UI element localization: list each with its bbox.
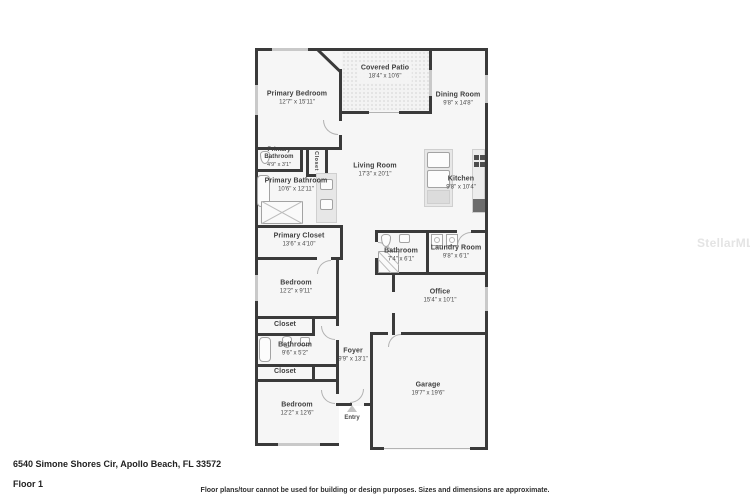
window-icon (429, 70, 432, 96)
cooktop-burner-icon (480, 162, 485, 167)
sink-icon (320, 199, 333, 210)
cooktop-burner-icon (480, 155, 485, 160)
room-dims: 13'6" x 4'10" (274, 242, 325, 249)
room-dims: 9'8" x 10'4" (446, 185, 476, 192)
room-name: Primary Closet (274, 233, 325, 241)
entry-arrow-icon (347, 405, 357, 412)
room-dims: 12'7" x 15'11" (267, 100, 327, 107)
room-label-bathroom-2: Bathroom9'6" x 5'2" (278, 342, 312, 359)
room-label-closet-2: Closet (274, 321, 296, 329)
room-name: Primary Bathroom (257, 147, 301, 161)
room-name: Garage (412, 382, 445, 390)
wall-segment (401, 332, 485, 335)
room-name: Closet (274, 321, 296, 329)
room-dims: 7'4" x 6'1" (384, 257, 418, 264)
room-dims: 9'6" x 5'2" (278, 351, 312, 358)
room-name: Entry (344, 415, 359, 422)
wall-segment (370, 332, 388, 335)
wall-segment (392, 272, 395, 292)
wall-segment (426, 230, 429, 275)
watermark: StellarMLS (697, 236, 750, 250)
room-label-primary-bathroom-wc: Primary Bathroom4'9" x 3'1" (257, 147, 301, 169)
room-dims: 18'4" x 10'6" (361, 74, 409, 81)
room-name: Bathroom (384, 248, 418, 256)
wall-segment (306, 147, 309, 177)
room-dims: 17'3" x 20'1" (353, 172, 397, 179)
room-name: Office (424, 289, 457, 297)
room-name: Primary Bedroom (267, 91, 327, 99)
sliding-door-icon (369, 112, 399, 113)
room-name: Foyer (338, 348, 368, 356)
sink-icon (399, 234, 410, 243)
wall-segment (370, 332, 373, 450)
room-dims: 9'9" x 13'1" (338, 357, 368, 364)
kitchen-sink-icon (473, 199, 485, 212)
cooktop-burner-icon (474, 162, 479, 167)
wall-segment (255, 316, 339, 319)
room-label-living-room: Living Room17'3" x 20'1" (353, 163, 397, 180)
room-dims: 4'9" x 3'1" (257, 162, 301, 169)
room-label-primary-closet: Primary Closet13'6" x 4'10" (274, 233, 325, 250)
wall-segment (255, 225, 343, 228)
wall-segment (340, 225, 343, 260)
room-name: Kitchen (446, 176, 476, 184)
room-label-covered-patio: Covered Patio18'4" x 10'6" (358, 64, 412, 83)
room-name: Bedroom (281, 402, 314, 410)
bathtub-icon (259, 337, 271, 362)
room-name: Bedroom (280, 280, 312, 288)
address-text: 6540 Simone Shores Cir, Apollo Beach, FL… (13, 459, 221, 469)
room-label-kitchen: Kitchen9'8" x 10'4" (446, 176, 476, 193)
cooktop-burner-icon (474, 155, 479, 160)
room-label-entry: Entry (344, 414, 359, 422)
disclaimer-text: Floor plans/tour cannot be used for buil… (0, 487, 750, 494)
room-dims: 9'8" x 14'8" (436, 101, 481, 108)
room-name: Closet (274, 368, 296, 376)
wall-segment (470, 447, 488, 450)
room-label-foyer: Foyer9'9" x 13'1" (338, 348, 368, 365)
wall-segment (392, 313, 395, 335)
room-name: Laundry Room (431, 245, 482, 253)
room-dims: 12'2" x 9'11" (280, 289, 312, 296)
wall-segment (375, 230, 378, 242)
wall-segment (255, 169, 303, 172)
wall-segment (336, 257, 339, 319)
wall-segment (485, 48, 488, 450)
wall-segment (370, 447, 384, 450)
window-icon (255, 275, 258, 301)
room-label-closet-3: Closet (274, 368, 296, 376)
room-label-dining-room: Dining Room9'8" x 14'8" (436, 92, 481, 109)
room-name: Living Room (353, 163, 397, 171)
window-icon (278, 443, 320, 446)
wall-segment (255, 364, 339, 367)
room-dims: 12'2" x 12'6" (281, 411, 314, 418)
wall-segment (255, 379, 339, 382)
room-dims: 15'4" x 10'1" (424, 298, 457, 305)
room-label-primary-bathroom: Primary Bathroom10'6" x 12'11" (265, 178, 328, 195)
fridge-icon (427, 152, 450, 168)
wall-segment (339, 111, 369, 114)
wall-segment (255, 257, 317, 260)
room-name: Covered Patio (361, 65, 409, 73)
wall-segment (336, 316, 339, 326)
window-icon (255, 85, 258, 115)
garage-door-icon (384, 448, 470, 449)
room-label-garage: Garage19'7" x 19'6" (412, 382, 445, 399)
room-dims: 10'6" x 12'11" (265, 187, 328, 194)
room-label-bedroom-3: Bedroom12'2" x 12'6" (281, 402, 314, 419)
window-icon (485, 287, 488, 311)
floor-plan-page: Primary Bedroom12'7" x 15'11" Covered Pa… (0, 0, 750, 500)
room-label-closet: Closet (313, 151, 319, 171)
entry-exterior-cutout (339, 406, 370, 450)
room-dims: 9'8" x 6'1" (431, 254, 482, 261)
room-label-bedroom-2: Bedroom12'2" x 9'11" (280, 280, 312, 297)
room-label-office: Office15'4" x 10'1" (424, 289, 457, 306)
wall-segment (399, 111, 432, 114)
wall-segment (471, 230, 485, 233)
room-name: Bathroom (278, 342, 312, 350)
shower-icon (261, 201, 303, 224)
room-label-laundry-room: Laundry Room9'8" x 6'1" (431, 245, 482, 262)
wall-segment (336, 364, 339, 394)
wall-segment (375, 230, 457, 233)
window-icon (485, 75, 488, 103)
room-label-primary-bedroom: Primary Bedroom12'7" x 15'11" (267, 91, 327, 108)
room-label-bathroom-hall: Bathroom7'4" x 6'1" (384, 248, 418, 265)
window-icon (272, 48, 308, 51)
room-name: Primary Bathroom (265, 178, 328, 186)
room-name: Dining Room (436, 92, 481, 100)
room-dims: 19'7" x 19'6" (412, 391, 445, 398)
